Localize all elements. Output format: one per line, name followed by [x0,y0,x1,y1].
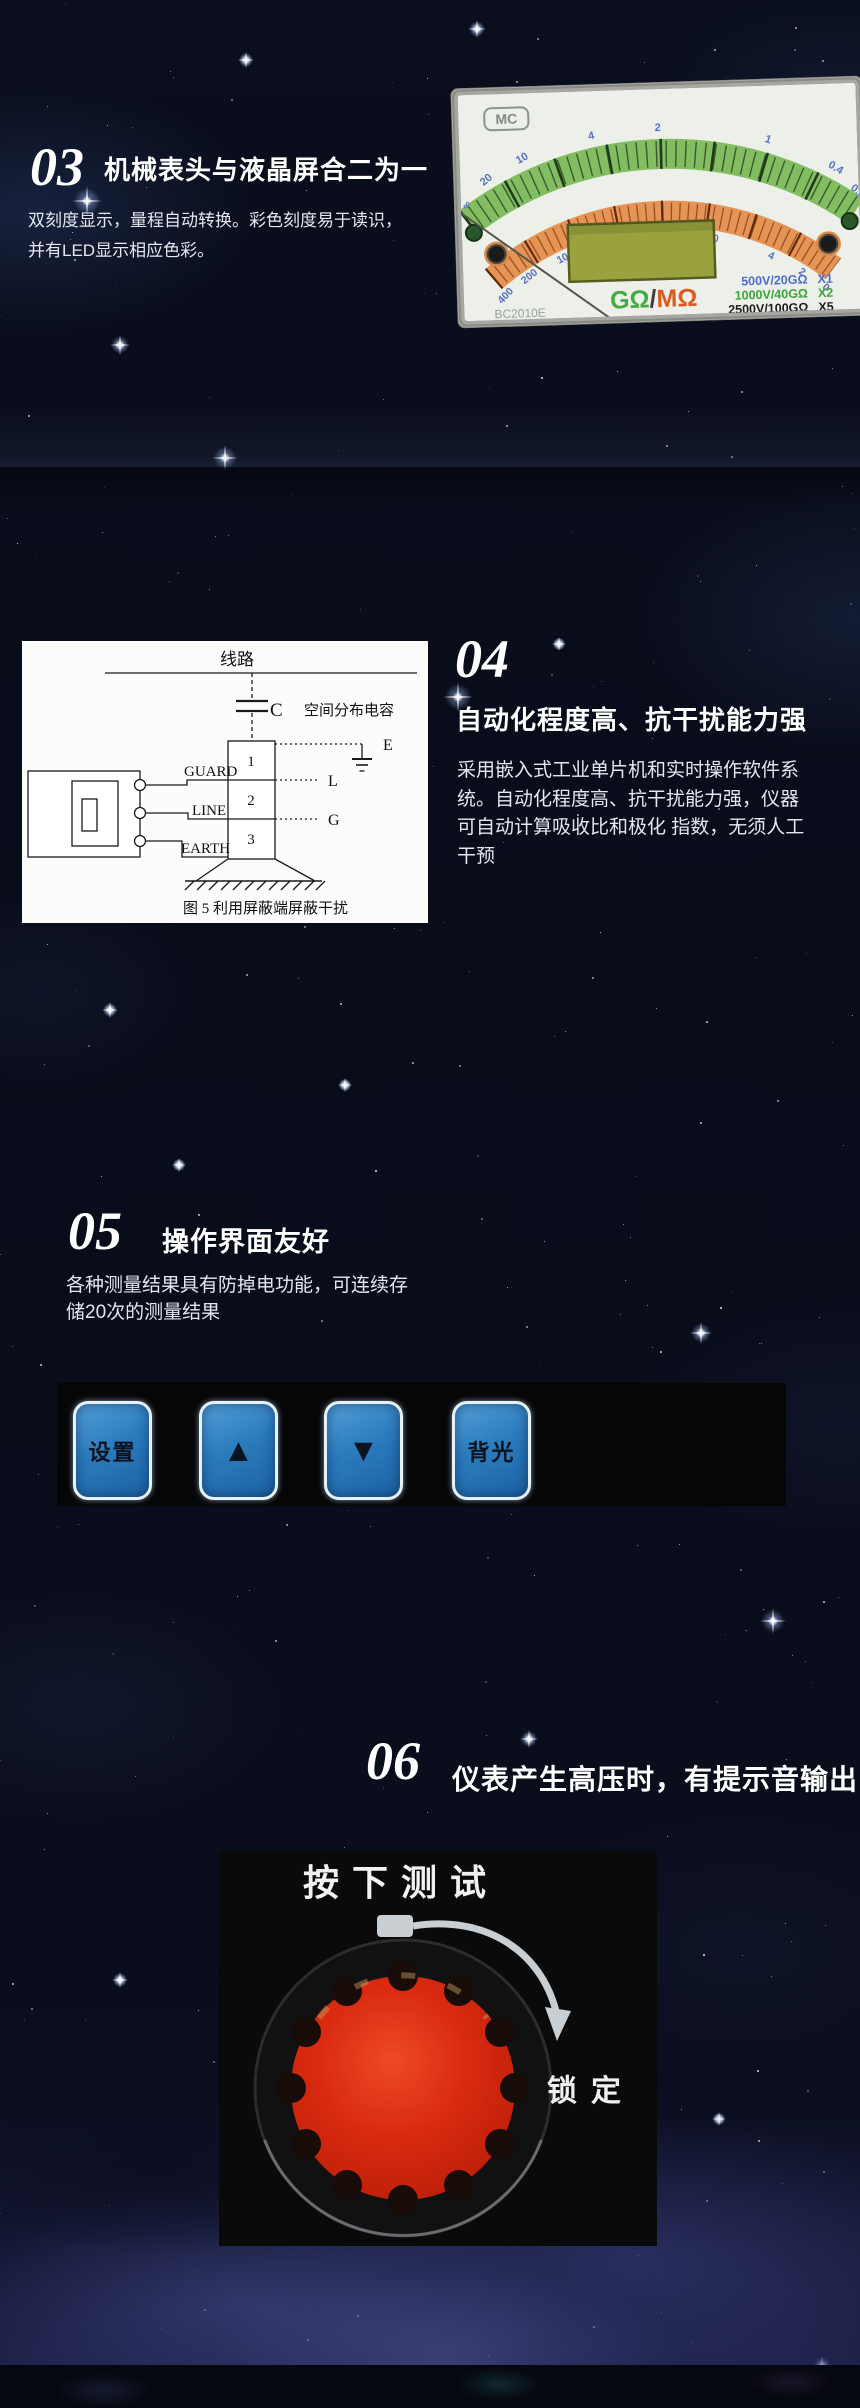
star-sparkle [172,1158,186,1172]
diagram-node-e: E [383,737,393,754]
section-06-number: 06 [366,1734,420,1788]
diagram-top-label: 线路 [220,650,254,669]
diagram-support-legs [196,859,315,881]
diagram-earth-label: EARTH [181,841,230,857]
diagram-cell-2: 2 [247,793,255,809]
settings-button-label: 设置 [88,1435,136,1467]
section-05-body: 各种测量结果具有防掉电功能，可连续存 储20次的测量结果 [66,1272,408,1326]
diagram-cell-3: 3 [247,832,255,848]
meter-screw-left [487,245,506,264]
rotate-arrowhead-icon [545,2007,571,2041]
meter-unit-label: GΩ/MΩ [610,284,698,315]
diagram-ground-hatching [185,881,325,890]
shield-wiring-diagram: 线路 C 空间分布电容 GUARD LINE EARTH 1 2 3 E L G… [22,641,428,923]
diagram-graphic: 线路 C 空间分布电容 GUARD LINE EARTH 1 2 3 E L G… [22,641,428,923]
meter-led-right [841,213,857,229]
meter-logo: MC [495,110,517,127]
star-sparkle [338,1078,352,1092]
promo-page: 03 机械表头与液晶屏合二为一 双刻度显示，量程自动转换。彩色刻度易于读识， 并… [0,0,860,2408]
settings-button[interactable]: 设置 [73,1401,152,1500]
meter-screw-right [819,234,838,253]
section-04-number: 04 [455,632,509,686]
backlight-button-label: 背光 [467,1435,515,1467]
star-sparkle [112,1972,128,1988]
press-test-label: 按下测试 [303,1862,499,1903]
background-seam-haze [0,407,860,467]
meter-outer-scale-label: 2 [654,122,660,134]
diagram-cap-symbol: C [270,700,283,721]
background-seam-shadow [0,467,860,507]
meter-face-graphic: ∞ 20 10 4 2 1 0.4 0.2 400 200 100 40 20 … [450,76,860,329]
down-button[interactable]: ▼ [324,1401,403,1500]
section-03-body: 双刻度显示，量程自动转换。彩色刻度易于读识， 并有LED显示相应色彩。 [28,206,402,266]
meter-range-mult: X2 [818,286,834,300]
section-05-number: 05 [68,1204,122,1258]
lock-label: 锁定 [547,2074,635,2108]
diagram-caption: 图 5 利用屏蔽端屏蔽干扰 [183,900,348,917]
star-sparkle [690,1322,712,1344]
star-sparkle [552,637,566,651]
analog-meter-photo: ∞ 20 10 4 2 1 0.4 0.2 400 200 100 40 20 … [450,76,860,329]
down-arrow-icon: ▼ [348,1432,380,1469]
backlight-button[interactable]: 背光 [452,1401,531,1500]
diagram-terminal-guard [135,780,146,791]
section-03-title: 机械表头与液晶屏合二为一 [104,150,428,187]
diagram-cap-label: 空间分布电容 [304,702,394,719]
section-05-title: 操作界面友好 [162,1220,330,1259]
star-sparkle [238,52,254,68]
star-sparkle [102,1002,118,1018]
diagram-line-label: LINE [192,803,226,819]
up-arrow-icon: ▲ [223,1432,255,1469]
knob-graphic: 按下测试 [219,1851,657,2246]
section-04-body: 采用嵌入式工业单片机和实时操作软件系 统。自动化程度高、抗干扰能力强，仪器 可自… [457,757,804,871]
arrow-tail [377,1915,413,1937]
diagram-node-l: L [328,773,338,790]
up-button[interactable]: ▲ [199,1401,278,1500]
diagram-guard-label: GUARD [184,764,238,780]
keypad-photo: 设置 ▲ ▼ 背光 [57,1383,786,1506]
bottom-starfield-strip [0,2365,860,2408]
diagram-terminal-earth [135,836,146,847]
section-06-title: 仪表产生高压时，有提示音输出 [452,1758,858,1798]
diagram-terminal-line [135,808,146,819]
diagram-node-g: G [328,812,340,829]
star-sparkle [760,1608,786,1634]
diagram-guard-wire [146,780,229,785]
section-04-title: 自动化程度高、抗干扰能力强 [456,700,807,737]
test-knob-photo: 按下测试 [219,1851,657,2246]
star-sparkle [110,335,130,355]
star-sparkle [468,20,486,38]
meter-range-mult: X1 [817,272,833,286]
section-03-number: 03 [30,140,84,194]
star-sparkle [520,1730,538,1748]
diagram-cell-1: 1 [247,754,255,770]
